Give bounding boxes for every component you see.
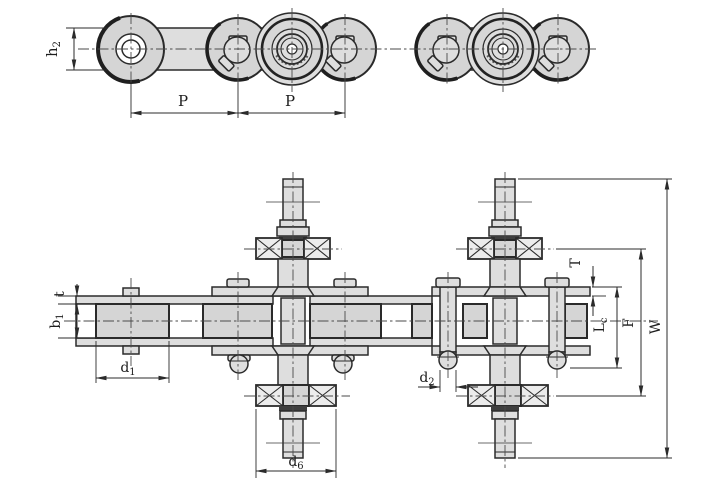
dimension-label-p: P (285, 92, 295, 110)
drawing-canvas: h2 P P (0, 0, 721, 493)
dimension-label-d1: d1 (120, 360, 135, 378)
dimension-label-p: P (178, 92, 188, 110)
dimension-label-T: T (568, 258, 584, 268)
dimension-label-F: F (621, 318, 637, 328)
dimension-t: t (52, 284, 78, 297)
dimension-label-b1: b1 (48, 313, 66, 328)
inner-plate-bar (310, 338, 432, 346)
shaft-through-bearing (495, 385, 521, 406)
cotter-pin-end (228, 355, 250, 373)
dimension-label-d2: d2 (419, 370, 434, 388)
plan-section-view: t b1 d1 d6 d2 (48, 172, 672, 478)
dimension-label-h2: h2 (43, 41, 63, 57)
pin-end-round (334, 355, 352, 373)
inner-plate-bar (76, 338, 273, 346)
cotter-pin-end (332, 355, 354, 373)
chain-technical-drawing: h2 P P (0, 0, 721, 493)
pin-end-round (230, 355, 248, 373)
shaft-through-bearing (283, 385, 309, 406)
dimension-label-Lc: Lc (592, 317, 610, 332)
dimension-W: W (518, 179, 672, 458)
dimension-label-W: W (648, 319, 664, 334)
inner-plate-bar (76, 296, 273, 304)
side-elevation-view: h2 P P (43, 8, 597, 118)
dimension-label-t: t (52, 291, 68, 297)
inner-plate-bar (310, 296, 432, 304)
